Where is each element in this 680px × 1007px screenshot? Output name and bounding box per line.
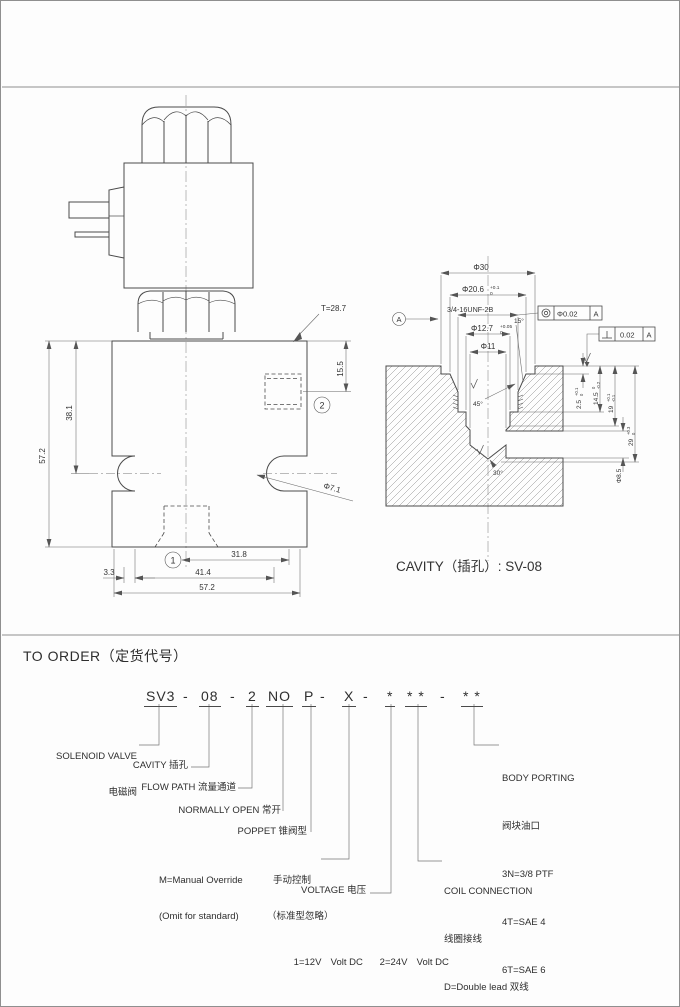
dim-41-4: 41.4 bbox=[195, 568, 211, 577]
fcf1-datum: A bbox=[593, 310, 598, 319]
code-seg-manual: X bbox=[342, 688, 356, 707]
cavity-drawing bbox=[386, 256, 591, 561]
label-poppet: POPPET 锥阀型 bbox=[207, 826, 307, 838]
dim-38-1: 38.1 bbox=[65, 405, 74, 421]
voltage-title: VOLTAGE 电压 bbox=[301, 885, 366, 897]
code-seg-voltage: * bbox=[385, 688, 395, 707]
label-solenoid-valve: SOLENOID VALVE 电磁阀 bbox=[41, 727, 137, 823]
cavity-caption: CAVITY（插孔）: SV-08 bbox=[396, 559, 542, 574]
datum-a-label: A bbox=[396, 315, 401, 324]
dim-14-5: 14.5 bbox=[593, 392, 600, 405]
fcf2-tolerance: 0.02 bbox=[620, 331, 635, 340]
label-normally-open: NORMALLY OPEN 常开 bbox=[149, 805, 281, 817]
code-seg-coil: * * bbox=[405, 688, 427, 707]
lower-hex-nut bbox=[138, 291, 235, 339]
dim-dia-8-5: Φ8.5 bbox=[616, 468, 623, 483]
dim-19: 19 bbox=[608, 405, 615, 413]
label-manual-override-en: M=Manual Override (Omit for standard) bbox=[159, 851, 243, 947]
code-separator: - bbox=[183, 688, 189, 704]
port2-number: 2 bbox=[319, 401, 324, 411]
dim-57-2-h: 57.2 bbox=[199, 583, 215, 592]
cavity-hatched-block bbox=[386, 366, 563, 506]
body-porting-block: BODY PORTING 阀块油口 3N=3/8 PTF 4T=SAE 4 6T… bbox=[502, 737, 626, 1007]
perpendicularity-icon bbox=[602, 331, 612, 338]
spade-terminal-2 bbox=[75, 232, 109, 237]
dim-29: 29 bbox=[628, 438, 635, 446]
dim-2-5-sub: 0 bbox=[579, 393, 584, 396]
dim-dia-20-6-sup: +0.1 bbox=[490, 285, 500, 291]
code-seg-porting: * * bbox=[461, 688, 483, 707]
dim-dia-12-7: Φ12.7 bbox=[471, 324, 494, 333]
angle-45: 45° bbox=[473, 400, 483, 408]
angle-15: 15° bbox=[514, 317, 524, 325]
dim-2-5: 2.5 bbox=[576, 400, 583, 409]
code-seg-poppet: P bbox=[302, 688, 316, 707]
code-separator: - bbox=[440, 688, 446, 704]
dim-19-sub: -0.1 bbox=[611, 394, 616, 402]
angle-30: 30° bbox=[493, 469, 503, 477]
hidden-port-2 bbox=[265, 374, 301, 409]
voltage-row: 1=12VVolt DC2=24VVolt DC bbox=[267, 934, 466, 988]
fcf2-datum: A bbox=[646, 331, 651, 340]
solenoid-valve-drawing bbox=[69, 95, 337, 569]
fcf1-tolerance: Φ0.02 bbox=[557, 310, 578, 319]
page-rule-lines bbox=[2, 87, 680, 635]
code-seg-series: SV3 bbox=[144, 688, 177, 707]
dim-3-3: 3.3 bbox=[103, 568, 115, 577]
code-seg-no: NO bbox=[266, 688, 293, 707]
port1-number: 1 bbox=[170, 556, 175, 566]
datasheet-page: T=28.7 57.2 38.1 15.5 Φ7.1 1 2 31.8 3.3 … bbox=[0, 0, 680, 1007]
dim-14-5-sub: -0.2 bbox=[596, 381, 601, 389]
code-separator: - bbox=[230, 688, 236, 704]
hidden-port-1 bbox=[155, 506, 218, 547]
dim-dia-12-7-sub: 0 bbox=[500, 330, 503, 336]
spade-terminal-1 bbox=[69, 202, 109, 218]
dim-57-2-v: 57.2 bbox=[38, 448, 47, 464]
code-separator: - bbox=[363, 688, 369, 704]
dim-dia-20-6-sub: 0 bbox=[490, 291, 493, 297]
voltage-table: 1=12VVolt DC2=24VVolt DC 3=110VVolt AC4=… bbox=[267, 898, 466, 1007]
order-section-title: TO ORDER（定货代号） bbox=[23, 646, 188, 666]
dim-dia-20-6: Φ20.6 bbox=[462, 285, 485, 294]
code-seg-flowpath: 2 bbox=[246, 688, 259, 707]
valve-body-outline bbox=[112, 341, 307, 547]
coil-body bbox=[124, 163, 253, 288]
dim-t: T=28.7 bbox=[321, 304, 347, 313]
code-separator: - bbox=[320, 688, 326, 704]
code-seg-cavity: 08 bbox=[199, 688, 221, 707]
concentricity-icon bbox=[542, 309, 550, 317]
coil-connector bbox=[69, 187, 124, 258]
dim-31-8: 31.8 bbox=[231, 550, 247, 559]
dim-dia-11: Φ11 bbox=[481, 342, 496, 351]
label-flow-path: FLOW PATH 流量通道 bbox=[119, 782, 236, 794]
dim-15-5: 15.5 bbox=[336, 361, 345, 377]
label-cavity: CAVITY 插孔 bbox=[101, 760, 188, 772]
dim-thread: 3/4-16UNF-2B bbox=[447, 305, 494, 314]
dim-dia-7-1: Φ7.1 bbox=[322, 481, 342, 495]
valve-dimension-texts: T=28.7 57.2 38.1 15.5 Φ7.1 1 2 31.8 3.3 … bbox=[38, 304, 347, 592]
dim-dia-12-7-sup: +0.05 bbox=[500, 324, 512, 330]
dim-dia-30: Φ30 bbox=[473, 263, 489, 272]
top-cap-nut bbox=[142, 107, 231, 163]
